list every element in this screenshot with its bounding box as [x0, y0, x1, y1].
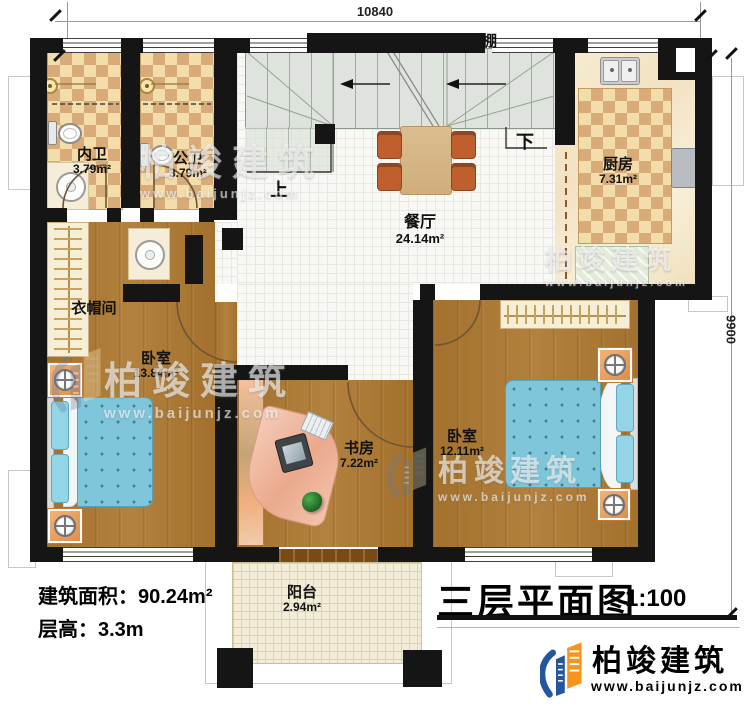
wall-right	[638, 284, 655, 562]
scale-label: 1:100	[625, 585, 686, 613]
canopy-wall	[307, 33, 485, 53]
bed-icon	[505, 378, 638, 488]
room-label-balcony: 阳台 2.94m²	[262, 584, 342, 615]
building-area-row: 建筑面积：90.24m²	[38, 581, 213, 614]
window	[143, 38, 214, 53]
room-label-bedroom1: 卧室 13.84m²	[115, 350, 197, 381]
room-area: 13.84m²	[115, 367, 197, 381]
room-name: 阳台	[262, 584, 342, 601]
wall	[199, 208, 214, 222]
room-area: 2.94m²	[262, 601, 342, 615]
plan-info: 建筑面积：90.24m² 层高：3.3m	[38, 581, 213, 647]
wall	[140, 208, 154, 222]
wall	[378, 547, 465, 562]
dining-table	[400, 126, 452, 195]
chair-icon	[451, 163, 476, 191]
wall	[555, 38, 575, 145]
floor-height-value: 3.3m	[98, 619, 144, 641]
room-area: 3.79m²	[152, 167, 224, 181]
room-name: 内卫	[52, 146, 132, 163]
sink-icon	[135, 240, 165, 270]
wall-left	[30, 38, 47, 562]
watermark-logo-icon	[52, 342, 108, 414]
wall-right	[695, 38, 712, 300]
room-name: 卧室	[115, 350, 197, 367]
dimension-line-top	[55, 21, 701, 22]
dimension-top-value: 10840	[338, 4, 412, 19]
bath2-floor	[140, 52, 216, 210]
balcony-pillar	[403, 650, 442, 687]
room-area: 7.22m²	[322, 457, 396, 471]
staircase	[245, 48, 559, 129]
stove-icon	[671, 148, 697, 188]
canopy-label: 棚	[482, 30, 497, 51]
wardrobe-icon	[500, 300, 630, 329]
wall	[592, 547, 655, 562]
room-label-cloakroom: 衣帽间	[52, 300, 136, 317]
room-area: 12.11m²	[420, 445, 504, 459]
wall	[480, 284, 695, 300]
room-name: 衣帽间	[52, 300, 136, 317]
brand-url: www.baijunjz.com	[591, 678, 744, 694]
room-name: 书房	[322, 440, 396, 457]
building-area-label: 建筑面积：	[38, 586, 138, 608]
brand-logo-icon	[540, 638, 588, 698]
wall	[185, 235, 203, 284]
dimension-tick	[49, 9, 62, 22]
toilet-icon	[48, 121, 82, 145]
wall	[214, 48, 237, 220]
nightstand-icon	[598, 348, 632, 382]
wall	[230, 365, 348, 380]
room-name: 餐厅	[374, 214, 466, 232]
room-name: 公卫	[152, 150, 224, 167]
wall	[215, 365, 237, 547]
room-area: 24.14m²	[374, 232, 466, 247]
window	[63, 38, 121, 53]
room-label-bedroom2: 卧室 12.11m²	[420, 428, 504, 459]
room-label-bath2: 公卫 3.79m²	[152, 150, 224, 181]
window	[588, 38, 658, 53]
chair-icon	[451, 131, 476, 159]
brand-name: 柏竣建筑	[592, 636, 728, 680]
room-label-kitchen: 厨房 7.31m²	[582, 156, 654, 187]
room-name: 厨房	[582, 156, 654, 173]
title-underline	[437, 615, 737, 620]
wall	[30, 547, 63, 562]
window	[492, 38, 553, 53]
floor-height-row: 层高：3.3m	[38, 614, 213, 647]
dimension-stub	[67, 2, 68, 38]
nightstand-icon	[598, 489, 630, 520]
stair-newel	[315, 124, 335, 144]
dimension-right-value: 9900	[724, 305, 739, 355]
floor-height-label: 层高：	[38, 619, 98, 641]
floor-plan-page: 内卫 3.79m² 公卫 3.79m² 厨房 7.31m² 餐厅 24.14m²…	[0, 0, 750, 707]
nightstand-icon	[48, 509, 82, 543]
kitchen-sink-icon	[600, 57, 640, 85]
chair-icon	[377, 163, 402, 191]
room-label-bath1: 内卫 3.79m²	[52, 146, 132, 177]
shower-mixer-icon	[139, 78, 155, 94]
wall	[193, 547, 279, 562]
room-label-dining: 餐厅 24.14m²	[374, 214, 466, 247]
room-area: 7.31m²	[582, 173, 654, 187]
wall	[420, 284, 435, 300]
dimension-stub	[700, 2, 701, 38]
building-area-value: 90.24m²	[138, 586, 213, 608]
wall	[121, 48, 140, 208]
balcony-threshold	[279, 549, 378, 562]
window	[465, 547, 592, 562]
wall	[47, 208, 67, 222]
kitchen-cabinet	[575, 246, 649, 286]
wall	[222, 228, 243, 250]
bracket-outline	[712, 76, 744, 186]
bedroom1-floor	[215, 302, 237, 365]
window	[63, 547, 193, 562]
room-name: 卧室	[420, 428, 504, 445]
wall	[413, 300, 433, 547]
room-label-study: 书房 7.22m²	[322, 440, 396, 471]
balcony-pillar	[217, 648, 253, 688]
chair-icon	[377, 131, 402, 159]
stair-down-label: 下	[516, 128, 534, 154]
window	[250, 38, 307, 53]
wardrobe-icon	[47, 222, 89, 357]
title-underline-thin	[437, 627, 740, 628]
wall	[107, 208, 121, 222]
stair-up-label: 上	[270, 176, 288, 202]
room-area: 3.79m²	[52, 163, 132, 177]
watermark-logo-icon	[388, 442, 432, 500]
